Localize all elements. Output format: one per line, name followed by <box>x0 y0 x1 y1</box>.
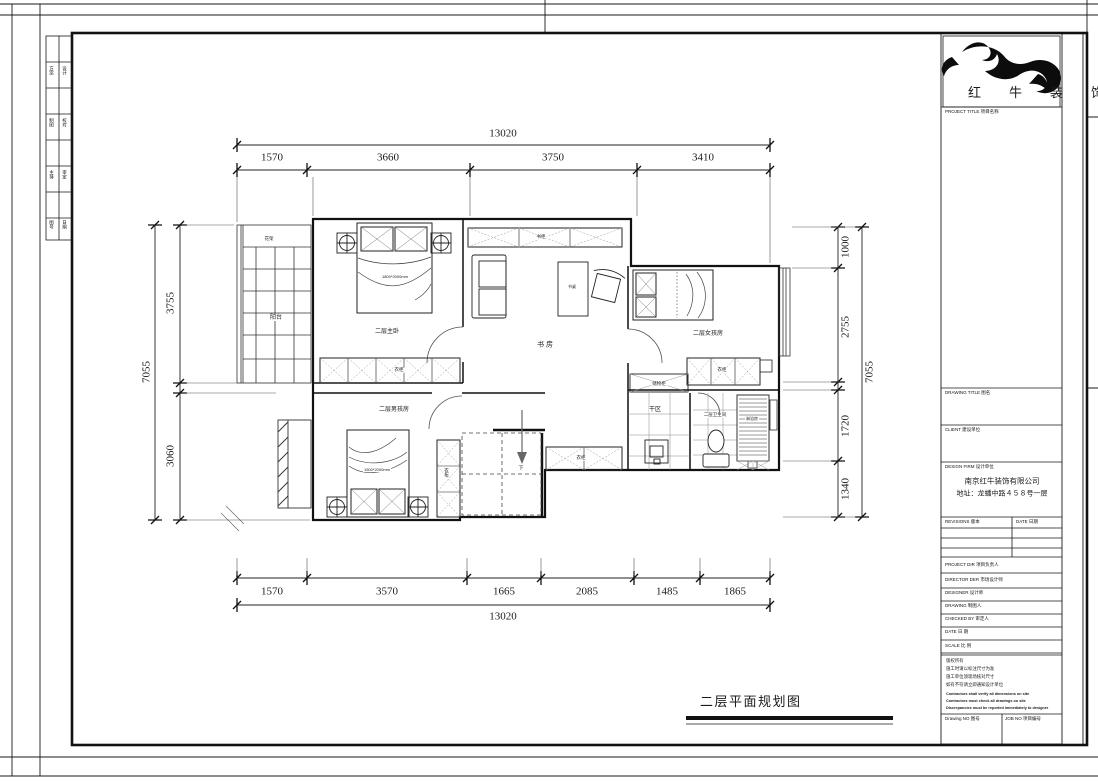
girls-wardrobe <box>687 358 772 385</box>
boys-wardrobe-label: 衣柜 <box>444 468 449 477</box>
date-label: DATE 日 期 <box>945 630 968 635</box>
door-arcs <box>427 327 720 429</box>
dim-left-2: 3060 <box>166 445 177 467</box>
dim-top-1: 1570 <box>261 153 283 164</box>
hall-cabinet-label: 衣柜 <box>576 456 587 461</box>
sink <box>645 440 668 464</box>
note-cn-2: 施工时请以标注尺寸为准 <box>946 667 994 671</box>
note-cn-1: 版权所有 <box>946 659 964 663</box>
boys-wardrobe <box>437 440 460 517</box>
date-column-label: DATE 日期 <box>1016 520 1038 525</box>
director-label: DIRECTOR DER 市场设计师 <box>945 578 1003 583</box>
dim-left-total: 7055 <box>142 361 153 383</box>
study-label: 书 房 <box>537 342 553 349</box>
checked-by-label: CHECKED BY 审定人 <box>945 617 989 622</box>
caption-underline <box>686 716 893 724</box>
balcony <box>221 225 311 531</box>
note-en-3: Discrepancies must be reported immediate… <box>946 707 1048 711</box>
dim-bottom-4: 2085 <box>576 587 598 598</box>
stairs-down-label: 下 <box>518 467 523 472</box>
dim-right-4: 1340 <box>841 478 852 500</box>
master-bed <box>357 223 432 313</box>
revisions-label: REVISIONS 版本 <box>945 520 980 525</box>
binding-cell-8: 日期 <box>62 220 67 229</box>
note-en-2: Contractors must check all drawings on s… <box>946 700 1026 704</box>
dim-bottom-2: 3570 <box>376 587 398 598</box>
design-firm-name: 南京红牛装饰有限公司 <box>965 477 1040 485</box>
master-wardrobe-label: 衣柜 <box>394 368 405 373</box>
binding-cell-1: 方案 <box>49 66 54 75</box>
window-bay <box>779 268 790 356</box>
drawing-caption: 二层平面规划图 <box>700 695 802 708</box>
logo-text: 红牛装饰 <box>968 86 1098 99</box>
binding-cell-3: 制图 <box>49 118 54 127</box>
dim-top-total: 13020 <box>489 129 517 140</box>
down-arrow-icon <box>517 452 527 464</box>
design-firm-address: 地址：龙蟠中路４５８号一层 <box>957 491 1048 498</box>
drawing-no-label: Drawing NO 图号 <box>945 717 980 722</box>
client-label: CLIENT 建设单位 <box>945 428 980 433</box>
dry-area-label: 干区 <box>649 407 661 413</box>
note-cn-3: 施工单位须现场核对尺寸 <box>946 675 994 679</box>
design-firm-label: DESIGN FIRM 设计单位 <box>945 465 994 470</box>
scale-label: SCALE 比 例 <box>945 644 971 649</box>
sofa <box>472 255 506 318</box>
dim-top-2: 3660 <box>377 153 399 164</box>
storage-cabinet-label: 储物柜 <box>651 382 667 387</box>
toilet <box>703 430 729 467</box>
dimension-lines <box>155 145 862 605</box>
girls-bed <box>633 270 713 320</box>
binding-cell-7: 图号 <box>49 220 54 229</box>
boys-bed <box>347 430 409 517</box>
drawing-sheet: 红牛装饰 PROJECT TITLE 项目名称 DRAWING TITLE 图名… <box>0 0 1098 781</box>
desk <box>558 262 588 316</box>
master-bed-size: 1800*2000mm <box>381 275 409 279</box>
master-wardrobe <box>320 358 460 383</box>
dim-bottom-6: 1865 <box>724 587 746 598</box>
drawing-label: DRAWING 制图人 <box>945 604 981 609</box>
sheet-frame <box>0 0 1098 776</box>
dim-right-total: 7055 <box>865 361 876 383</box>
stairs <box>462 410 545 517</box>
dim-top-3: 3750 <box>542 153 564 164</box>
binding-cell-2: 设计 <box>62 66 67 75</box>
dim-bottom-5: 1485 <box>656 587 678 598</box>
dim-bottom-3: 1665 <box>493 587 515 598</box>
note-en-1: Contractors shall verify all dimensions … <box>946 693 1029 697</box>
dim-top-4: 3410 <box>692 153 714 164</box>
job-no-label: JOB NO 项目编号 <box>1005 717 1041 722</box>
binding-cell-4: 校对 <box>62 118 67 127</box>
sheet-linework <box>0 0 1098 781</box>
binding-cell-5: 主持 <box>49 170 54 179</box>
project-title-label: PROJECT TITLE 项目名称 <box>945 110 999 115</box>
dim-bottom-1: 1570 <box>261 587 283 598</box>
exterior-walls <box>313 219 779 520</box>
shower <box>737 395 777 470</box>
note-cn-4: 如有不符请立即通知设计单位 <box>946 683 1003 687</box>
desk-chair <box>591 267 625 303</box>
shower-room-label: 淋浴房 <box>745 417 759 421</box>
extension-lines <box>186 177 856 575</box>
girls-room-label: 二层女孩房 <box>693 331 723 337</box>
designer-label: DESIGNER 设计师 <box>945 591 983 596</box>
master-bedroom-label: 二层主卧 <box>375 329 399 335</box>
drawing-border <box>72 33 1087 745</box>
flower-rack-label: 花架 <box>264 237 275 242</box>
dim-right-1: 1000 <box>841 236 852 258</box>
binding-cell-6: 审定 <box>62 170 67 179</box>
project-dir-label: PROJECT DIR 项目负责人 <box>945 563 999 568</box>
dim-right-2: 2755 <box>841 316 852 338</box>
balcony-label: 阳台 <box>270 315 282 321</box>
desk-label: 书桌 <box>567 285 577 289</box>
bathroom-label: 二层卫生间 <box>703 413 728 418</box>
dim-bottom-total: 13020 <box>489 612 517 623</box>
small-balcony <box>278 420 311 508</box>
girls-wardrobe-label: 衣柜 <box>717 368 728 373</box>
dim-right-3: 1720 <box>841 415 852 437</box>
bookcase-label: 书柜 <box>536 235 547 240</box>
drawing-title-label: DRAWING TITLE 图名 <box>945 391 990 396</box>
boys-room-label: 二层男孩房 <box>379 407 409 413</box>
dry-area <box>628 393 690 470</box>
boys-bed-size: 1500*2000mm <box>363 468 391 472</box>
dim-left-1: 3755 <box>166 292 177 314</box>
master-bedside-lights <box>337 233 451 253</box>
